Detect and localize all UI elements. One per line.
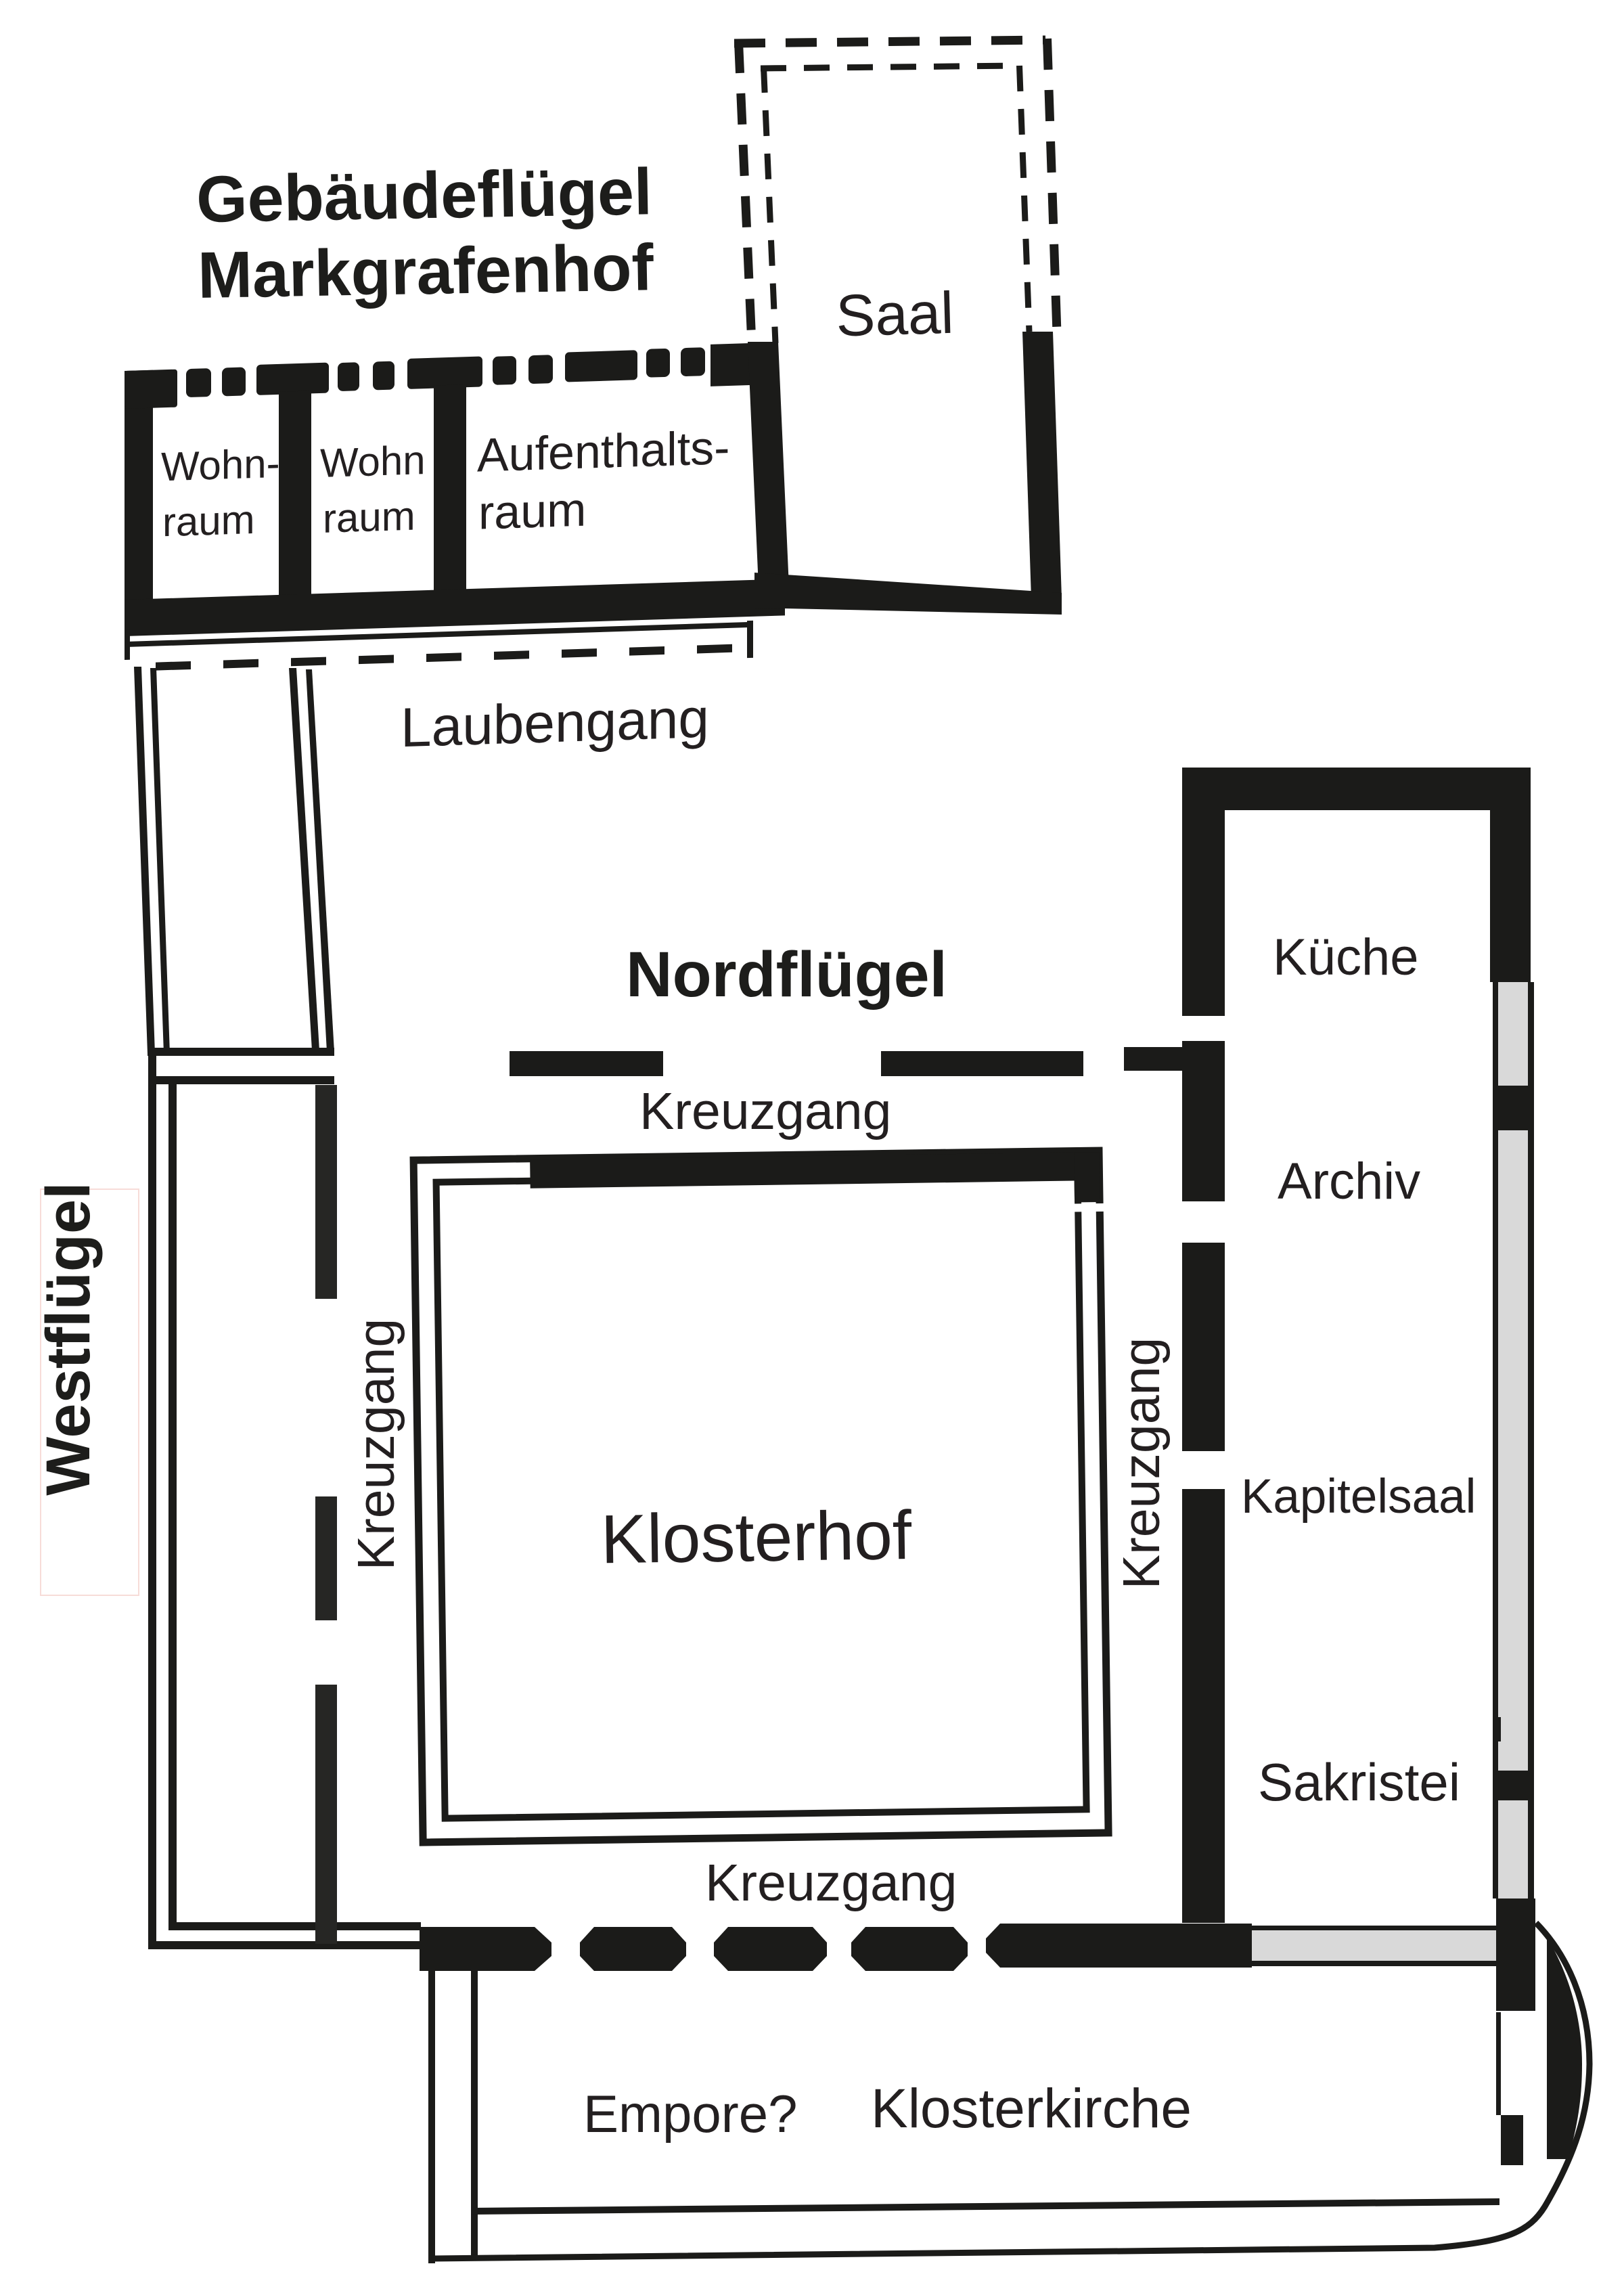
svg-text:Aufenthalts-: Aufenthalts- bbox=[477, 421, 729, 482]
svg-text:Wohn: Wohn bbox=[320, 437, 426, 486]
svg-text:Klosterkirche: Klosterkirche bbox=[871, 2078, 1192, 2139]
svg-text:Saal: Saal bbox=[835, 280, 955, 349]
svg-text:Nordflügel: Nordflügel bbox=[626, 939, 947, 1011]
svg-text:Gebäudeflügel: Gebäudeflügel bbox=[196, 154, 653, 236]
svg-text:raum: raum bbox=[162, 497, 255, 545]
svg-text:Kapitelsaal: Kapitelsaal bbox=[1241, 1470, 1476, 1524]
svg-text:Sakristei: Sakristei bbox=[1258, 1752, 1460, 1812]
svg-text:Küche: Küche bbox=[1273, 929, 1419, 986]
svg-text:Kreuzgang: Kreuzgang bbox=[705, 1854, 957, 1912]
svg-text:Wohn-: Wohn- bbox=[161, 441, 280, 490]
svg-text:Kreuzgang: Kreuzgang bbox=[639, 1082, 891, 1140]
svg-text:Markgrafenhof: Markgrafenhof bbox=[197, 230, 654, 312]
svg-text:Laubengang: Laubengang bbox=[401, 688, 709, 759]
svg-text:Klosterhof: Klosterhof bbox=[600, 1496, 912, 1578]
svg-text:Westflügel: Westflügel bbox=[34, 1182, 103, 1495]
svg-text:Kreuzgang: Kreuzgang bbox=[1112, 1337, 1171, 1589]
svg-text:raum: raum bbox=[323, 493, 415, 541]
svg-text:raum: raum bbox=[478, 483, 586, 539]
svg-text:Empore?: Empore? bbox=[583, 2084, 798, 2144]
svg-text:Archiv: Archiv bbox=[1278, 1153, 1420, 1210]
svg-text:Kreuzgang: Kreuzgang bbox=[347, 1318, 405, 1570]
